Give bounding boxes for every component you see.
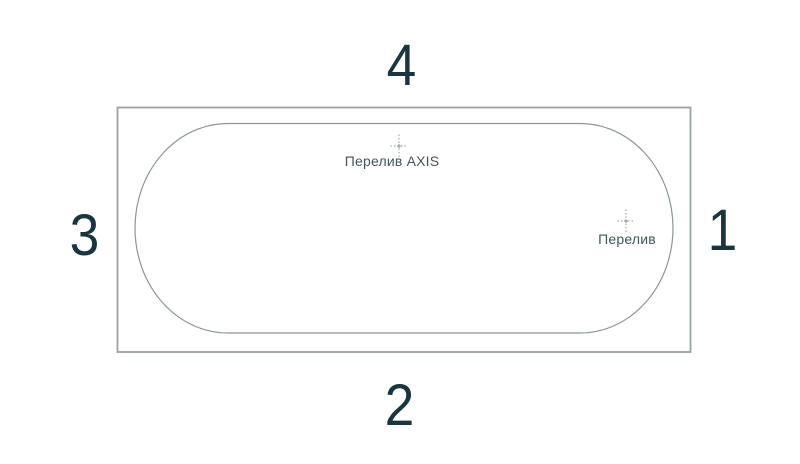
bathtub-top-view-diagram: 1 2 3 4 Перелив AXIS Перелив [0,0,800,464]
overflow-label: Перелив [598,232,656,246]
side-number-4: 4 [387,37,416,95]
side-number-3: 3 [70,207,99,265]
overflow-axis-label: Перелив AXIS [345,154,440,168]
side-number-1: 1 [708,202,737,260]
side-number-2: 2 [385,377,414,435]
center-mark-icon [618,210,635,233]
tub-outer-rim [118,108,691,353]
